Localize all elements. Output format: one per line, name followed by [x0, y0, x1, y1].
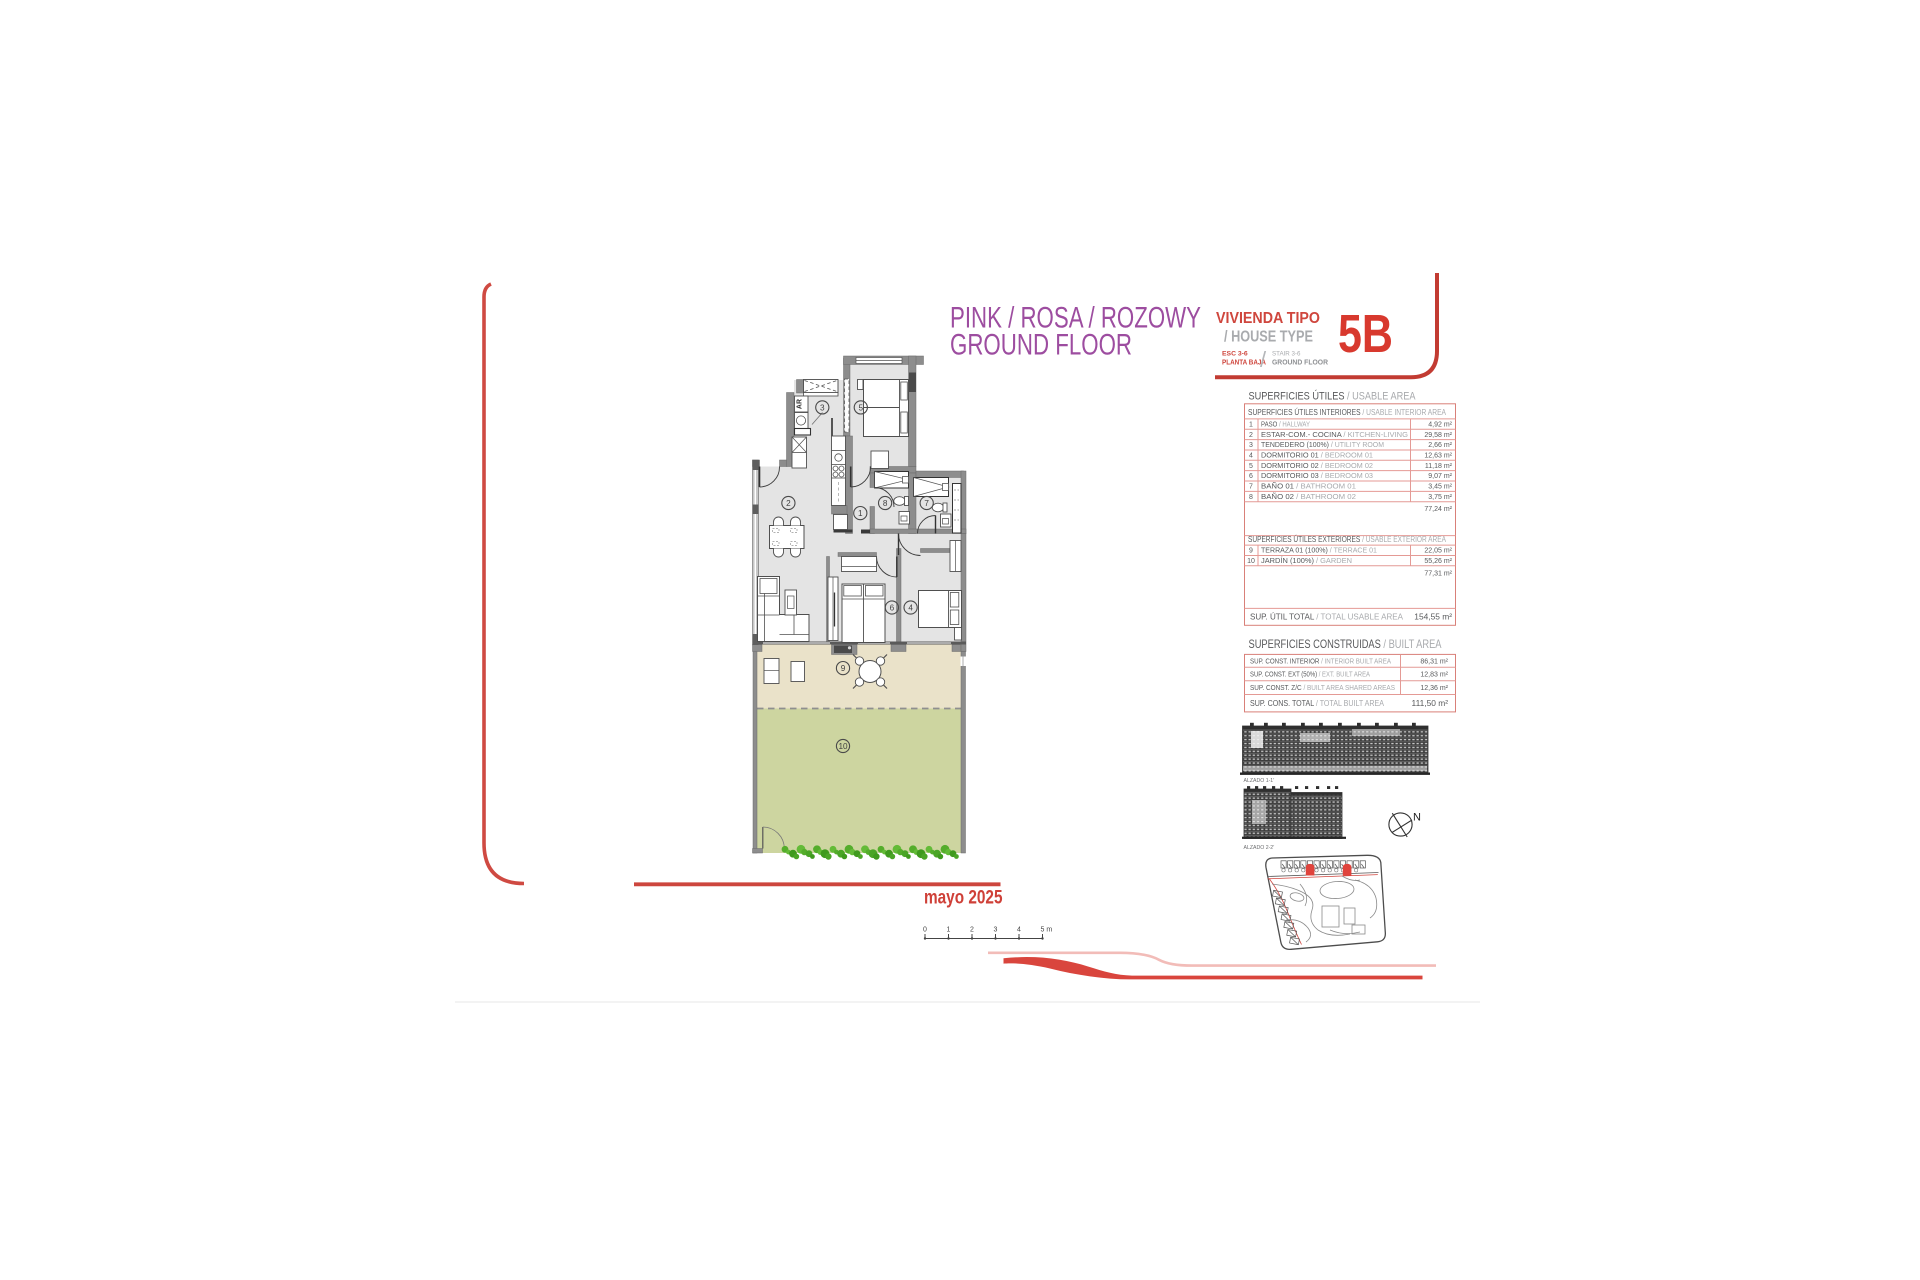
svg-text:4: 4 — [1017, 927, 1021, 934]
svg-text:DORMITORIO 01 / BEDROOM 01: DORMITORIO 01 / BEDROOM 01 — [1261, 452, 1373, 459]
svg-text:GROUND FLOOR: GROUND FLOOR — [1272, 358, 1329, 367]
svg-text:1: 1 — [1249, 421, 1253, 428]
svg-text:BAÑO 01 / BATHROOM 01: BAÑO 01 / BATHROOM 01 — [1261, 482, 1356, 491]
svg-text:6: 6 — [890, 603, 895, 612]
svg-text:DORMITORIO 02 / BEDROOM 02: DORMITORIO 02 / BEDROOM 02 — [1261, 463, 1373, 470]
svg-text:SUP. CONST. EXT (50%) / EXT. B: SUP. CONST. EXT (50%) / EXT. BUILT AREA — [1250, 672, 1370, 679]
svg-text:2: 2 — [970, 927, 974, 934]
svg-text:12,36 m²: 12,36 m² — [1420, 685, 1448, 692]
svg-text:9: 9 — [841, 664, 846, 673]
svg-text:SUP. ÚTIL TOTAL / TOTAL USABLE: SUP. ÚTIL TOTAL / TOTAL USABLE AREA — [1250, 612, 1403, 622]
svg-text:SUPERFICIES CONSTRUIDAS / BUIL: SUPERFICIES CONSTRUIDAS / BUILT AREA — [1249, 637, 1442, 651]
svg-text:5 m: 5 m — [1041, 927, 1053, 934]
svg-text:8: 8 — [1249, 494, 1253, 501]
svg-text:10: 10 — [838, 742, 848, 751]
svg-text:TERRAZA 01 (100%) / TERRACE 01: TERRAZA 01 (100%) / TERRACE 01 — [1261, 548, 1377, 555]
svg-text:9,07 m²: 9,07 m² — [1428, 473, 1452, 480]
svg-text:4: 4 — [1249, 452, 1253, 459]
svg-text:mayo 2025: mayo 2025 — [924, 887, 1003, 909]
svg-text:1: 1 — [858, 509, 863, 518]
svg-text:SUPERFICIES ÚTILES INTERIORES: SUPERFICIES ÚTILES INTERIORES / USABLE I… — [1248, 408, 1447, 417]
svg-text:PASO / HALLWAY: PASO / HALLWAY — [1261, 421, 1310, 428]
svg-text:0: 0 — [923, 927, 927, 934]
svg-text:GROUND FLOOR: GROUND FLOOR — [950, 329, 1132, 362]
svg-text:1: 1 — [947, 927, 951, 934]
svg-text:ALZADO 2-2′: ALZADO 2-2′ — [1244, 845, 1275, 851]
svg-text:22,05 m²: 22,05 m² — [1424, 548, 1452, 555]
svg-text:DORMITORIO 03 / BEDROOM 03: DORMITORIO 03 / BEDROOM 03 — [1261, 473, 1373, 480]
svg-text:ESC 3-6: ESC 3-6 — [1222, 351, 1248, 358]
svg-text:3: 3 — [994, 927, 998, 934]
svg-text:86,31 m²: 86,31 m² — [1420, 658, 1448, 665]
svg-text:8: 8 — [883, 499, 888, 508]
svg-text:TENDEDERO (100%) / UTILITY ROO: TENDEDERO (100%) / UTILITY ROOM — [1261, 442, 1384, 449]
svg-text:/ HOUSE TYPE: / HOUSE TYPE — [1224, 329, 1313, 346]
svg-text:3: 3 — [1249, 442, 1253, 449]
svg-text:10: 10 — [1247, 558, 1255, 565]
svg-text:STAIR 3-6: STAIR 3-6 — [1272, 351, 1301, 358]
svg-text:2,66 m²: 2,66 m² — [1428, 442, 1452, 449]
svg-text:VIVIENDA TIPO: VIVIENDA TIPO — [1216, 310, 1320, 327]
svg-text:154,55 m²: 154,55 m² — [1414, 612, 1452, 622]
svg-text:AR: AR — [797, 399, 804, 409]
svg-text:SUPERFICIES ÚTILES EXTERIORES: SUPERFICIES ÚTILES EXTERIORES / USABLE E… — [1248, 535, 1447, 544]
svg-text:N: N — [1413, 812, 1421, 824]
svg-text:5: 5 — [859, 403, 864, 412]
svg-text:6: 6 — [1249, 473, 1253, 480]
svg-text:4: 4 — [908, 603, 913, 612]
svg-text:SUP. CONST. INTERIOR / INTERIO: SUP. CONST. INTERIOR / INTERIOR BUILT AR… — [1250, 658, 1391, 665]
svg-text:ESTAR-COM.- COCINA / KITCHEN-L: ESTAR-COM.- COCINA / KITCHEN-LIVING — [1261, 432, 1408, 439]
svg-text:3,75 m²: 3,75 m² — [1428, 494, 1452, 501]
svg-text:5: 5 — [1249, 463, 1253, 470]
svg-text:111,50 m²: 111,50 m² — [1412, 698, 1449, 708]
svg-text:12,83 m²: 12,83 m² — [1420, 672, 1448, 679]
svg-text:4,92 m²: 4,92 m² — [1428, 421, 1452, 428]
svg-text:SUP. CONS. TOTAL / TOTAL BUILT: SUP. CONS. TOTAL / TOTAL BUILT AREA — [1250, 698, 1384, 708]
svg-text:/: / — [1260, 347, 1267, 372]
svg-text:SUPERFICIES ÚTILES / USABLE A: SUPERFICIES ÚTILES / USABLE AREA — [1249, 390, 1416, 403]
svg-text:2: 2 — [786, 499, 791, 508]
svg-text:11,18 m²: 11,18 m² — [1425, 463, 1453, 470]
svg-text:3: 3 — [820, 403, 825, 412]
svg-text:9: 9 — [1249, 548, 1253, 555]
svg-text:BAÑO 02 / BATHROOM 02: BAÑO 02 / BATHROOM 02 — [1261, 492, 1356, 501]
svg-text:ALZADO 1-1′: ALZADO 1-1′ — [1244, 778, 1275, 784]
svg-text:SUP. CONST. Z/C / BUILT AREA S: SUP. CONST. Z/C / BUILT AREA SHARED AREA… — [1250, 685, 1395, 692]
svg-text:7: 7 — [1249, 484, 1253, 491]
svg-text:2: 2 — [1249, 432, 1253, 439]
svg-text:77,31 m²: 77,31 m² — [1424, 570, 1452, 577]
svg-text:77,24 m²: 77,24 m² — [1424, 506, 1452, 513]
svg-text:7: 7 — [924, 499, 929, 508]
svg-text:5B: 5B — [1338, 304, 1393, 364]
svg-text:JARDÍN (100%) / GARDEN: JARDÍN (100%) / GARDEN — [1261, 556, 1352, 565]
svg-text:12,63 m²: 12,63 m² — [1424, 452, 1452, 459]
svg-text:29,58 m²: 29,58 m² — [1424, 432, 1452, 439]
svg-text:3,45 m²: 3,45 m² — [1428, 484, 1452, 491]
svg-text:55,26 m²: 55,26 m² — [1424, 558, 1452, 565]
